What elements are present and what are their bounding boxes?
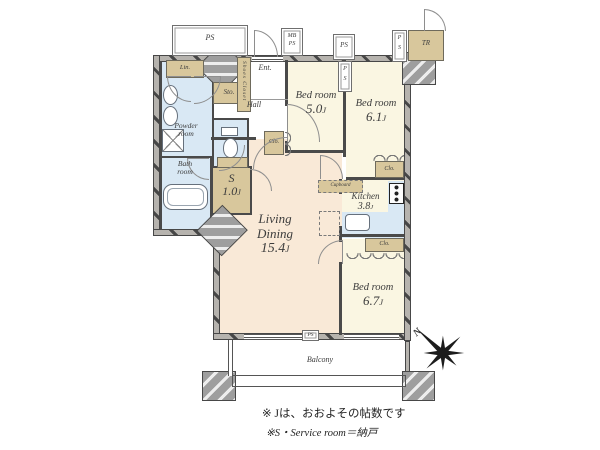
balcony-railing-end-left: [232, 375, 233, 387]
balcony-railing-inner: [232, 386, 406, 387]
powder-line2: room: [164, 130, 208, 138]
kitchen-label: Kitchen 3.8J: [343, 191, 388, 212]
wall-bed67-left: [339, 262, 342, 335]
closet-label: Clo.: [376, 166, 403, 173]
bed67-label: Bed room 6.7J: [348, 282, 398, 308]
bed61-area-value: 6.1: [366, 109, 382, 124]
bed61-area: 6.1J: [352, 110, 400, 125]
footnote-area-disclaimer: ※ Jは、おおよその帖数です: [262, 405, 406, 421]
kitchen-area-unit: J: [370, 204, 373, 211]
window-living-balcony: [244, 334, 302, 340]
linen-label: Lin.: [167, 64, 203, 71]
ps-label: PS: [303, 332, 318, 338]
pipe-shaft-bed61: P S: [338, 61, 352, 92]
pipe-shaft-top-mid: PS: [333, 34, 355, 60]
bed5-area-unit: J: [322, 105, 326, 115]
balcony-side-panel: [228, 340, 233, 376]
wall-left-lower: [213, 247, 220, 340]
bathtub-inner: [167, 188, 204, 206]
s-label: S: [339, 76, 351, 83]
closet-bed61: Clo.: [375, 161, 404, 178]
bath-room-label: Bath room: [164, 160, 206, 177]
bed67-area-value: 6.7: [363, 293, 379, 308]
footnote-service-room: ※S・Service room＝納戸: [266, 425, 377, 440]
refrigerator-space: [319, 211, 340, 236]
window-bed67-balcony: [344, 334, 399, 340]
p-label: P: [393, 35, 406, 42]
bath-line2: room: [164, 168, 206, 176]
service-room-area: 1.0J: [213, 185, 250, 198]
living-line2: Dining: [240, 227, 310, 242]
hanger-symbol-bed61: [373, 150, 404, 161]
living-area: 15.4J: [240, 241, 310, 257]
bed67-area: 6.7J: [348, 294, 398, 309]
bed67-area-unit: J: [379, 297, 383, 307]
s-label: S: [393, 45, 406, 52]
gas-stove: [389, 183, 404, 204]
living-line1: Living: [240, 212, 310, 227]
toilet-tank: [221, 127, 238, 136]
bed61-area-unit: J: [382, 113, 386, 123]
closet-label: Clo.: [366, 241, 403, 248]
service-room-name: S: [213, 172, 250, 185]
wall-right-extension: [405, 341, 410, 373]
kitchen-name: Kitchen: [343, 191, 388, 201]
ps-label: PS: [173, 34, 247, 43]
shoes-closet-label: Shoes Closet: [241, 61, 247, 101]
bed5-area: 5.0J: [292, 102, 340, 117]
entrance-door-arc: [254, 30, 278, 57]
wall-right: [404, 55, 411, 341]
hall-label: Hall: [238, 101, 270, 110]
balcony-label: Balcony: [298, 356, 342, 365]
ps-label: PS: [334, 42, 354, 50]
wall-kitchen-bottom: [342, 234, 404, 237]
cupboard-label: Cupboard: [319, 183, 362, 189]
balcony-railing-outer: [232, 375, 406, 376]
entrance-label: Ent.: [250, 64, 280, 73]
kitchen-area-value: 3.8: [358, 201, 371, 212]
powder-room-label: Powder room: [164, 122, 208, 139]
bed5-area-value: 5.0: [306, 101, 322, 116]
living-area-value: 15.4: [261, 241, 286, 256]
bed5-label: Bed room 5.0J: [292, 90, 340, 116]
living-dining-label: Living Dining 15.4J: [240, 212, 310, 257]
floor-plan: PS MB PS PS P S P S PS TR Lin. Sto. Shoe…: [0, 0, 600, 450]
pipe-shaft-top-left: PS: [172, 25, 248, 56]
meter-box-shaft: MB PS: [281, 28, 303, 56]
living-area-unit: J: [285, 244, 289, 254]
kitchen-sink: [345, 214, 370, 231]
ps-label: PS: [282, 41, 302, 48]
bed61-label: Bed room 6.1J: [352, 98, 400, 124]
service-area-unit: J: [237, 188, 241, 197]
service-room-label: S 1.0J: [213, 172, 250, 199]
hanger-symbol-bed67: [346, 253, 404, 266]
wall-left: [153, 55, 160, 236]
bathtub: [163, 184, 208, 210]
balcony-railing-end-right: [405, 375, 406, 387]
pipe-shaft-top-right: P S: [392, 30, 407, 62]
trunk-door-arc: [424, 9, 446, 31]
mb-label: MB: [282, 33, 302, 40]
p-label: P: [339, 66, 351, 73]
closet-bed67: Clo.: [365, 238, 404, 252]
trunk-room-label: TR: [409, 40, 443, 48]
kitchen-area: 3.8J: [343, 201, 388, 212]
pipe-shaft-bottom: PS: [302, 330, 319, 341]
trunk-room: TR: [408, 30, 444, 61]
service-area-value: 1.0: [222, 184, 237, 198]
